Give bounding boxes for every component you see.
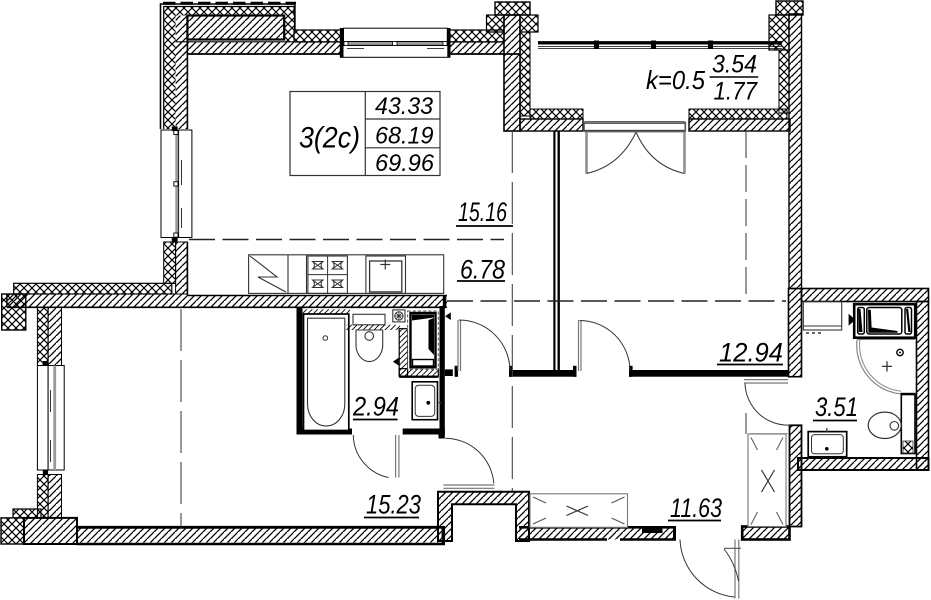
svg-text:3.51: 3.51: [815, 392, 858, 422]
svg-text:15.16: 15.16: [458, 197, 507, 227]
svg-text:3.54: 3.54: [712, 51, 757, 79]
svg-text:68.19: 68.19: [375, 123, 434, 150]
svg-text:1.77: 1.77: [714, 78, 758, 106]
svg-text:12.94: 12.94: [719, 338, 783, 368]
svg-text:11.63: 11.63: [670, 493, 722, 523]
svg-text:3(2с): 3(2с): [299, 122, 360, 155]
svg-text:15.23: 15.23: [366, 490, 421, 520]
svg-text:2.94: 2.94: [352, 392, 399, 422]
svg-text:69.96: 69.96: [375, 150, 434, 177]
svg-text:43.33: 43.33: [375, 93, 433, 120]
svg-text:6.78: 6.78: [460, 255, 505, 285]
svg-text:k=0.5: k=0.5: [646, 65, 705, 95]
